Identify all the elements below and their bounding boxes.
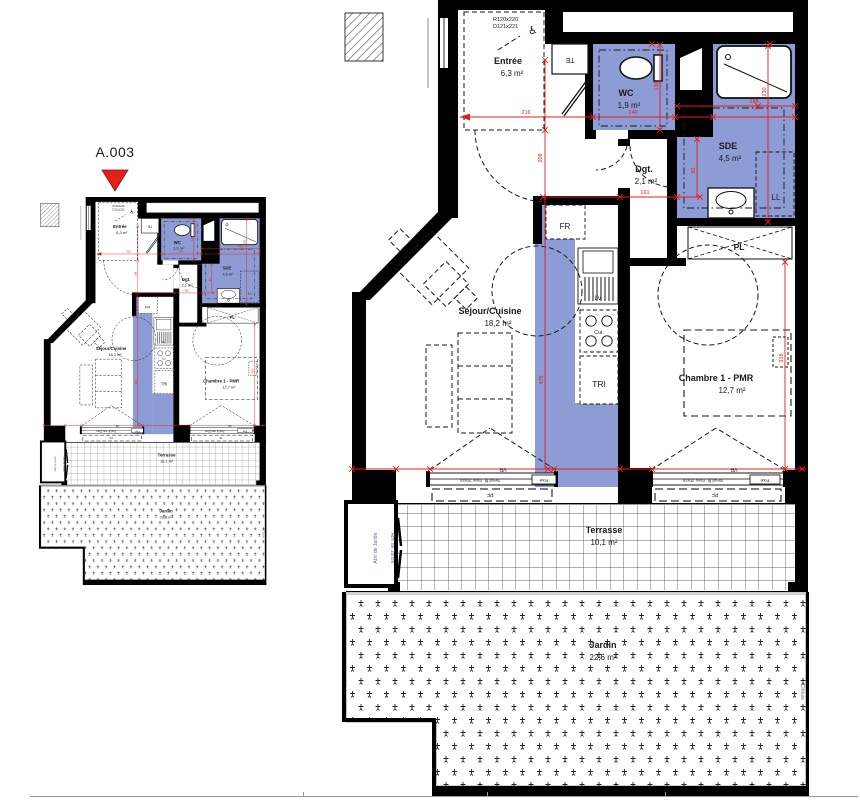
- svg-text:4,5 m²: 4,5 m²: [719, 154, 742, 163]
- svg-text:PL: PL: [734, 242, 745, 252]
- svg-text:LL: LL: [772, 193, 781, 202]
- door-spec-note: R120x220 D121x221 ♿: [113, 204, 135, 215]
- rule-tick: [665, 792, 666, 797]
- toilet-tank: [191, 224, 195, 237]
- svg-text:PF: PF: [712, 491, 718, 497]
- floorplan-page: A.003: [0, 0, 860, 800]
- svg-text:Jardin: Jardin: [160, 509, 173, 514]
- marker-triangle-icon: [102, 170, 128, 191]
- shower-tray: [222, 219, 258, 244]
- svg-text:12,7 m²: 12,7 m²: [718, 386, 745, 395]
- svg-text:1,9 m²: 1,9 m²: [173, 246, 185, 251]
- svg-text:195: 195: [237, 244, 242, 248]
- kitchen-strip-zone: [133, 297, 152, 434]
- svg-text:Seuil fil. max 20cm: Seuil fil. max 20cm: [96, 429, 116, 431]
- svg-text:LV: LV: [162, 340, 165, 344]
- svg-text:Cui.: Cui.: [594, 330, 604, 336]
- svg-text:4,5 m²: 4,5 m²: [222, 271, 234, 276]
- svg-text:Fixe: Fixe: [760, 477, 769, 483]
- svg-text:476: 476: [539, 375, 545, 384]
- svg-text:Clôture: Clôture: [262, 530, 265, 538]
- svg-text:12,7 m²: 12,7 m²: [222, 384, 236, 389]
- svg-text:VR: VR: [115, 424, 119, 427]
- svg-text:Abri de Jardin: Abri de Jardin: [373, 532, 379, 563]
- jardin-ground: [346, 594, 806, 786]
- svg-text:208: 208: [133, 271, 137, 276]
- svg-text:D121x221: D121x221: [493, 24, 518, 30]
- svg-text:Clôture: Clôture: [799, 684, 805, 700]
- svg-text:161: 161: [640, 190, 649, 196]
- svg-text:22,6 m²: 22,6 m²: [160, 514, 174, 519]
- svg-text:Seuil fil. max 20cm: Seuil fil. max 20cm: [460, 477, 500, 483]
- svg-text:PF: PF: [219, 436, 223, 439]
- toilet-icon: [620, 57, 652, 79]
- room-chambre-label: Chambre 1 - PMR 12,7 m²: [203, 379, 240, 390]
- jardin-ground: [41, 486, 265, 580]
- svg-text:1,9 m²: 1,9 m²: [618, 101, 641, 110]
- room-dgt-label: Dgt. 2,1 m²: [635, 164, 658, 186]
- svg-text:Fixe: Fixe: [134, 429, 139, 431]
- svg-text:TRI: TRI: [592, 379, 606, 389]
- svg-text:WC: WC: [174, 240, 182, 245]
- svg-text:216: 216: [126, 250, 131, 254]
- page-rule: [30, 796, 858, 797]
- svg-text:Cui.: Cui.: [162, 357, 167, 361]
- toilet-icon: [174, 225, 190, 236]
- svg-text:Chambre 1 - PMR: Chambre 1 - PMR: [203, 379, 240, 384]
- svg-text:208: 208: [538, 153, 544, 162]
- room-sejour-label: Séjour/Cuisine 18,2 m²: [96, 346, 127, 357]
- svg-text:Seuil fil. max 20cm: Seuil fil. max 20cm: [205, 429, 225, 431]
- svg-text:Séjour/Cuisine: Séjour/Cuisine: [96, 346, 127, 351]
- svg-text:6,3 m²: 6,3 m²: [116, 230, 128, 235]
- room-sejour-label: Séjour/Cuisine 18,2 m²: [458, 306, 521, 328]
- terrasse-paving: [397, 505, 802, 590]
- room-jardin-label: Jardin 22,6 m²: [160, 509, 174, 520]
- svg-text:Fixe: Fixe: [539, 477, 548, 483]
- svg-text:6,3 m²: 6,3 m²: [501, 69, 524, 78]
- svg-text:136: 136: [190, 236, 194, 241]
- room-dgt-label: Dgt. 2,1 m²: [182, 277, 194, 288]
- shower-drain: [726, 55, 731, 60]
- svg-text:Entrée: Entrée: [113, 224, 127, 229]
- svg-text:FR: FR: [145, 305, 150, 310]
- svg-text:Jardin: Jardin: [589, 640, 616, 650]
- svg-text:195: 195: [749, 99, 758, 105]
- floor-plan-svg: 216 140 195 161 208 476 230 318 136 81 E…: [38, 197, 267, 585]
- svg-text:TE: TE: [147, 224, 152, 228]
- svg-text:R120x220: R120x220: [493, 17, 518, 23]
- svg-text:Chambre 1 - PMR: Chambre 1 - PMR: [679, 373, 754, 383]
- rule-tick: [303, 792, 304, 797]
- svg-text:140: 140: [628, 110, 637, 116]
- unit-number-label: A.003: [82, 144, 148, 160]
- svg-text:216: 216: [521, 110, 530, 116]
- svg-text:81: 81: [208, 278, 212, 281]
- svg-text:18,2 m²: 18,2 m²: [484, 319, 511, 328]
- key-plan-drawing: 216 140 195 161 208 476 230 318 136 81 E…: [38, 197, 267, 585]
- svg-text:476: 476: [134, 379, 138, 384]
- svg-text:Dgt.: Dgt.: [635, 164, 653, 174]
- svg-text:318: 318: [779, 353, 785, 362]
- svg-text:Entrée: Entrée: [494, 56, 522, 66]
- terrasse-paving: [66, 443, 263, 484]
- svg-text:Abri de Jardin: Abri de Jardin: [389, 533, 395, 564]
- svg-text:VR: VR: [228, 424, 232, 427]
- svg-text:TE: TE: [565, 56, 574, 63]
- main-plan-drawing: 216 140 195 161 208 476 230 318 136 81 E…: [340, 0, 810, 797]
- svg-text:2,1 m²: 2,1 m²: [182, 283, 194, 288]
- svg-text:Terrasse: Terrasse: [586, 525, 623, 535]
- svg-text:D121x221: D121x221: [113, 208, 126, 212]
- svg-text:PF: PF: [487, 491, 493, 497]
- svg-text:Abri de Jardin: Abri de Jardin: [62, 456, 65, 472]
- door-spec-note: R120x220 D121x221 ♿: [493, 17, 538, 37]
- svg-text:10,1 m²: 10,1 m²: [590, 538, 617, 547]
- svg-text:TRI: TRI: [161, 381, 168, 386]
- wheelchair-icon: ♿: [528, 25, 538, 37]
- svg-text:VR: VR: [730, 466, 737, 472]
- svg-text:VR: VR: [499, 466, 506, 472]
- toilet-tank: [654, 55, 662, 81]
- svg-text:WC: WC: [619, 88, 634, 98]
- wheelchair-icon: ♿: [130, 210, 135, 216]
- shower-tray: [717, 46, 791, 98]
- svg-text:SDE: SDE: [719, 141, 738, 151]
- svg-text:Terrasse: Terrasse: [158, 453, 176, 458]
- svg-text:136: 136: [654, 81, 660, 90]
- unit-location-marker: [101, 169, 129, 192]
- svg-text:18,2 m²: 18,2 m²: [108, 352, 122, 357]
- svg-text:318: 318: [251, 369, 255, 374]
- svg-text:10,1 m²: 10,1 m²: [160, 458, 174, 463]
- svg-text:Seuil fil. max 20cm: Seuil fil. max 20cm: [683, 477, 723, 483]
- svg-text:PL: PL: [230, 315, 236, 320]
- room-entree-label: Entrée 6,3 m²: [113, 224, 128, 235]
- hatch-square: [345, 13, 383, 61]
- room-chambre-label: Chambre 1 - PMR 12,7 m²: [679, 373, 754, 395]
- svg-text:Dgt.: Dgt.: [182, 277, 191, 282]
- svg-text:230: 230: [242, 239, 246, 244]
- floor-plan-svg: 216 140 195 161 208 476 230 318 136 81 E…: [340, 0, 810, 797]
- shower-drain: [226, 224, 228, 226]
- svg-text:Fixe: Fixe: [242, 429, 247, 431]
- kitchen-strip-zone-low: [575, 403, 618, 487]
- rule-tick: [487, 792, 488, 797]
- svg-text:SDE: SDE: [222, 266, 231, 271]
- outdoor-surfaces: [41, 443, 265, 580]
- kitchen-strip-zone-low: [152, 393, 173, 434]
- svg-text:161: 161: [184, 288, 189, 292]
- svg-text:FR: FR: [560, 222, 571, 231]
- outdoor-surfaces: [346, 505, 806, 786]
- svg-text:2,1 m²: 2,1 m²: [635, 177, 658, 186]
- svg-text:22,6 m²: 22,6 m²: [589, 653, 616, 662]
- svg-text:Séjour/Cuisine: Séjour/Cuisine: [458, 306, 521, 316]
- room-entree-label: Entrée 6,3 m²: [494, 56, 524, 78]
- svg-text:LV: LV: [595, 296, 602, 302]
- svg-text:PF: PF: [109, 436, 113, 439]
- svg-text:Abri de Jardin: Abri de Jardin: [54, 456, 57, 472]
- svg-text:230: 230: [762, 87, 768, 96]
- kitchen-strip-zone: [535, 205, 575, 487]
- svg-text:81: 81: [691, 167, 697, 173]
- hatch-square: [40, 203, 59, 226]
- svg-text:R120x220: R120x220: [113, 204, 126, 208]
